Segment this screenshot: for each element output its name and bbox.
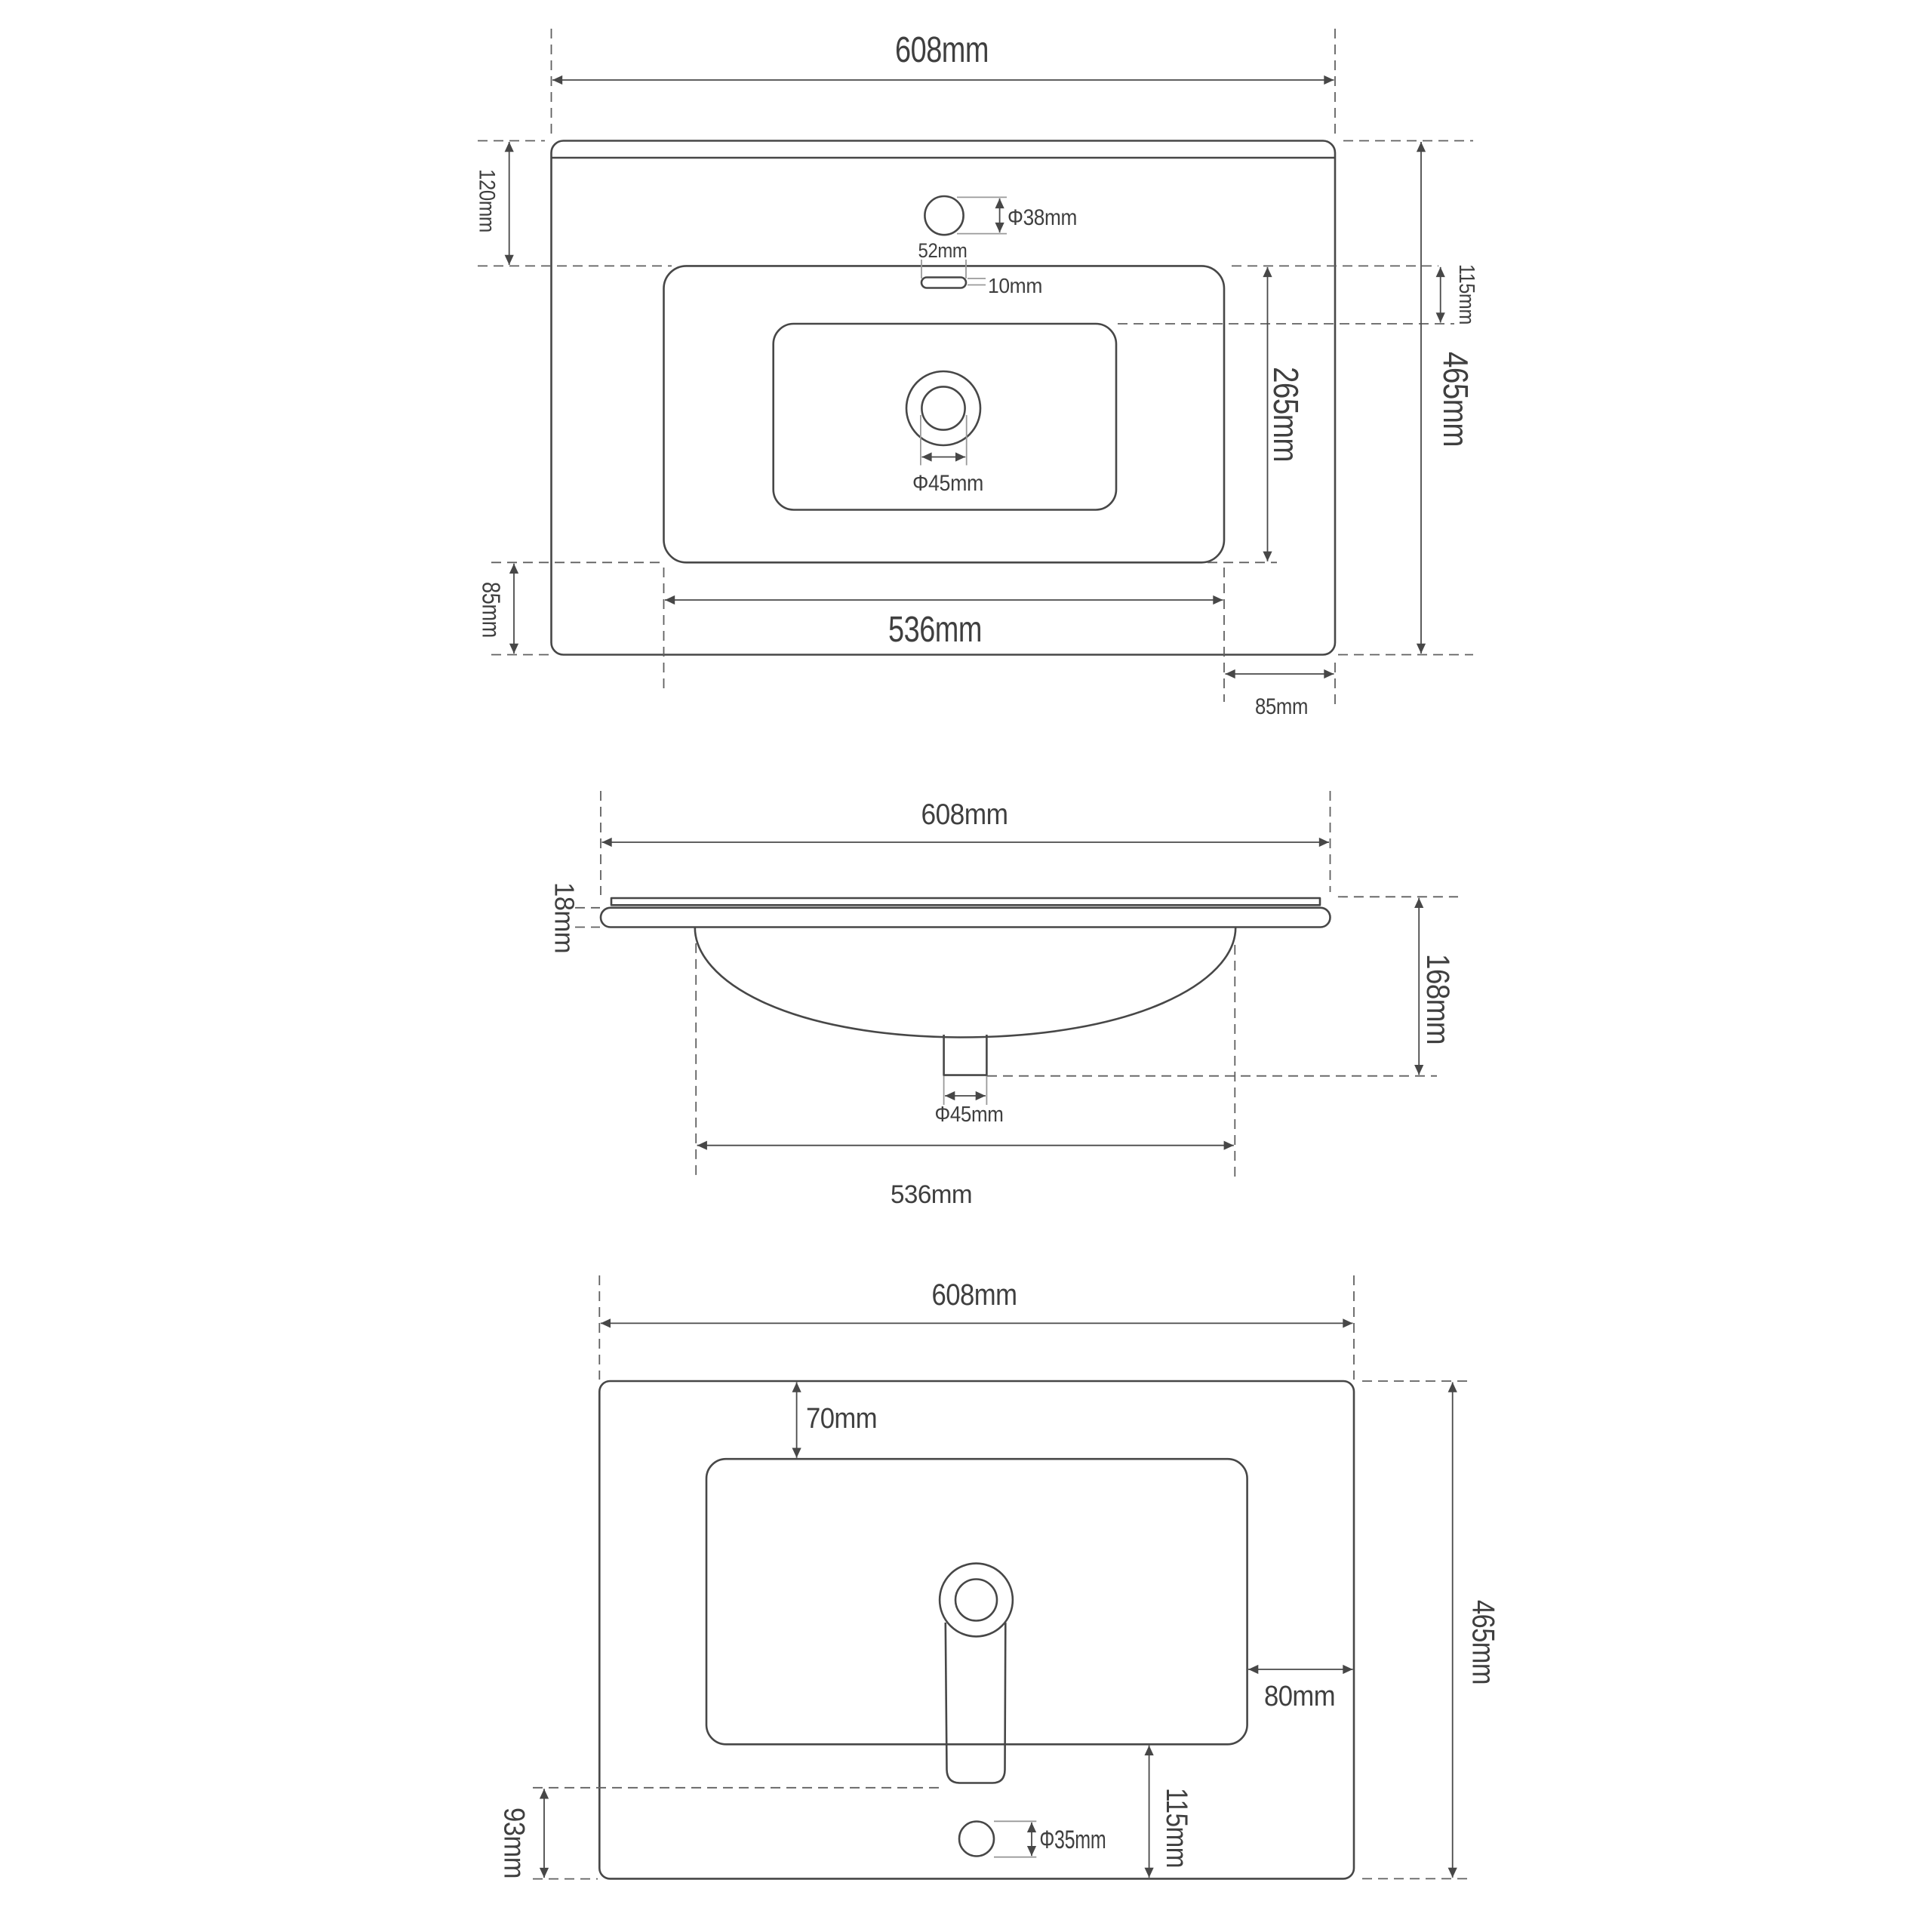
svg-text:608mm: 608mm (921, 798, 1008, 831)
svg-text:465mm: 465mm (1436, 352, 1475, 447)
svg-text:115mm: 115mm (1454, 264, 1478, 325)
svg-text:265mm: 265mm (1266, 367, 1306, 462)
svg-text:10mm: 10mm (988, 274, 1042, 297)
svg-text:85mm: 85mm (477, 582, 505, 638)
svg-text:115mm: 115mm (1160, 1788, 1193, 1868)
svg-text:Φ45mm: Φ45mm (912, 471, 983, 496)
svg-text:465mm: 465mm (1466, 1600, 1501, 1684)
svg-text:93mm: 93mm (497, 1807, 530, 1878)
svg-text:52mm: 52mm (918, 239, 968, 262)
svg-text:120mm: 120mm (475, 169, 500, 232)
svg-text:18mm: 18mm (549, 882, 580, 953)
svg-text:Φ45mm: Φ45mm (935, 1103, 1004, 1127)
svg-text:168mm: 168mm (1420, 954, 1456, 1044)
svg-text:Φ35mm: Φ35mm (1039, 1826, 1106, 1854)
svg-text:536mm: 536mm (888, 610, 982, 650)
svg-text:80mm: 80mm (1264, 1681, 1335, 1712)
svg-text:70mm: 70mm (806, 1403, 877, 1435)
svg-text:608mm: 608mm (895, 30, 989, 70)
svg-text:85mm: 85mm (1255, 694, 1308, 719)
svg-text:536mm: 536mm (891, 1180, 972, 1209)
svg-text:608mm: 608mm (932, 1278, 1017, 1312)
svg-text:Φ38mm: Φ38mm (1008, 205, 1077, 230)
